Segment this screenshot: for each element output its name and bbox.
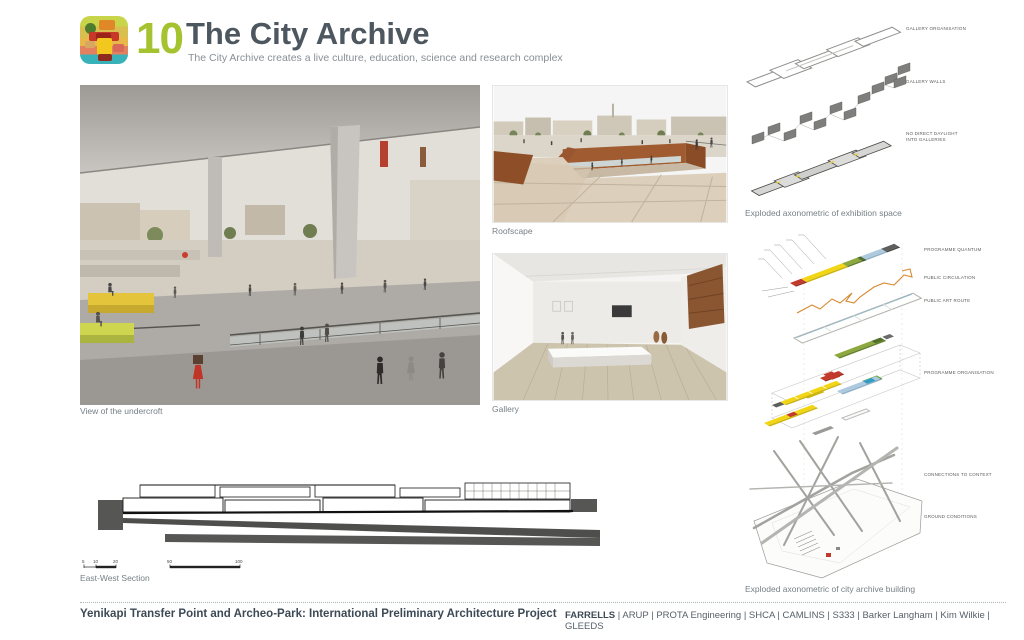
east-west-section-drawing <box>95 478 605 553</box>
city-archive-logo-icon <box>80 16 128 64</box>
label-ground-conditions: GROUND CONDITIONS <box>924 514 977 520</box>
gallery-rendering <box>492 253 728 401</box>
scale-bar: 5 10 20 50 100 <box>78 558 253 572</box>
roofscape-caption: Roofscape <box>492 226 533 236</box>
footer-divider <box>80 602 1006 603</box>
exhibition-axonometric-caption: Exploded axonometric of exhibition space <box>745 208 902 218</box>
consultant-names: | ARUP | PROTA Engineering | SHCA | CAML… <box>565 610 990 632</box>
scale-label-20: 20 <box>113 559 119 564</box>
label-gallery-organisation: GALLERY ORGANISATION <box>906 26 966 32</box>
roofscape-rendering <box>492 85 728 223</box>
scale-label-100: 100 <box>235 559 243 564</box>
scale-label-10: 10 <box>93 559 99 564</box>
label-public-art-route: PUBLIC ART ROUTE <box>924 298 970 304</box>
board-number: 10 <box>136 14 183 64</box>
label-programme-quantum: PROGRAMME QUANTUM <box>924 247 981 253</box>
label-connections-to-context: CONNECTIONS TO CONTEXT <box>924 472 992 478</box>
scale-label-5: 5 <box>82 559 85 564</box>
page-subtitle: The City Archive creates a live culture,… <box>188 52 563 64</box>
gallery-caption: Gallery <box>492 404 519 414</box>
label-gallery-walls: GALLERY WALLS <box>906 79 946 85</box>
archive-axonometric-diagram: PROGRAMME QUANTUM PUBLIC CIRCULATION PUB… <box>742 233 1022 583</box>
undercroft-rendering <box>80 85 480 405</box>
exhibition-axonometric-diagram: GALLERY ORGANISATION GALLERY WALLS NO DI… <box>742 18 1022 210</box>
page-title: The City Archive <box>186 16 429 52</box>
undercroft-caption: View of the undercroft <box>80 406 163 416</box>
archive-axonometric-caption: Exploded axonometric of city archive bui… <box>745 584 915 594</box>
scale-label-50: 50 <box>167 559 173 564</box>
label-programme-organisation: PROGRAMME ORGANISATION <box>924 370 994 376</box>
presentation-board: 10 The City Archive The City Archive cre… <box>0 0 1024 640</box>
project-title: Yenikapi Transfer Point and Archeo-Park:… <box>80 608 557 620</box>
section-caption: East-West Section <box>80 573 150 583</box>
label-public-circulation: PUBLIC CIRCULATION <box>924 275 975 281</box>
consultant-list: FARRELLS | ARUP | PROTA Engineering | SH… <box>565 610 1024 632</box>
label-no-direct-daylight: NO DIRECT DAYLIGHT INTO GALLERIES <box>906 131 964 142</box>
lead-firm: FARRELLS <box>565 610 615 621</box>
